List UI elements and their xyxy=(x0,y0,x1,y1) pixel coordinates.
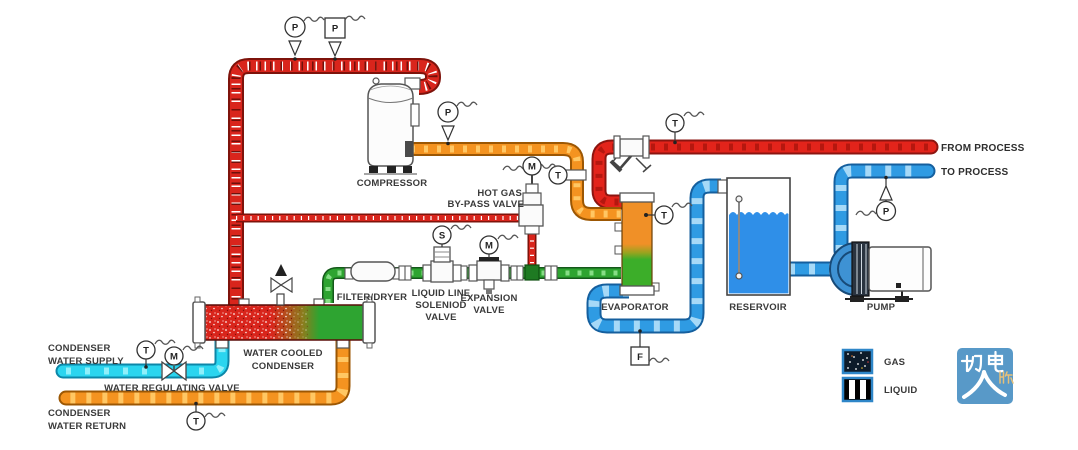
solenoid-label-3: VALVE xyxy=(425,312,456,323)
legend: GAS LIQUID xyxy=(843,350,917,401)
compressor-terminal-box xyxy=(411,104,419,126)
return-label-1: CONDENSER xyxy=(48,408,111,419)
motor-actuator-bypass: M xyxy=(503,157,541,175)
supply-label-1: CONDENSER xyxy=(48,343,111,354)
evaporator xyxy=(615,193,659,295)
sensor-letter: S xyxy=(439,231,445,242)
filter-dryer xyxy=(345,262,401,281)
sensor-letter: T xyxy=(193,417,199,428)
pressure-sensor-suction: P xyxy=(438,102,477,145)
expansion-label-1: EXPANSION xyxy=(460,293,517,304)
solenoid-coil xyxy=(434,247,450,262)
compressor-label: COMPRESSOR xyxy=(357,178,428,189)
chiller-system-diagram: P P P T M xyxy=(0,0,1078,450)
relief-valve xyxy=(271,264,292,305)
reservoir-label: RESERVOIR xyxy=(729,302,787,313)
relief-arrow-icon xyxy=(275,264,287,276)
sensor-letter: T xyxy=(555,171,561,182)
level-gauge xyxy=(736,196,742,202)
to-process-label: TO PROCESS xyxy=(941,167,1009,178)
legend-liquid-label: LIQUID xyxy=(884,385,917,396)
expansion-label-2: VALVE xyxy=(473,305,504,316)
hot-gas-bypass-label-2: BY-PASS VALVE xyxy=(447,199,524,210)
solenoid-sensor: S xyxy=(433,225,471,247)
from-process-label: FROM PROCESS xyxy=(941,143,1025,154)
brand-logo xyxy=(957,348,1013,404)
sensor-letter: P xyxy=(332,24,339,35)
filter-dryer-label: FILTER/DRYER xyxy=(337,292,407,303)
y-strainer xyxy=(611,136,651,172)
condenser-label-2: CONDENSER xyxy=(252,361,315,372)
hot-gas-bypass-label-1: HOT GAS xyxy=(477,188,522,199)
return-label-2: WATER RETURN xyxy=(48,421,126,432)
sensor-letter: M xyxy=(170,352,178,363)
temperature-sensor-return: T xyxy=(187,402,225,430)
condenser-right-cap xyxy=(363,302,375,343)
reservoir xyxy=(718,178,790,295)
condenser-label-1: WATER COOLED xyxy=(243,348,322,359)
regulating-valve-label: WATER REGULATING VALVE xyxy=(104,383,240,394)
sensor-letter: T xyxy=(672,119,678,130)
legend-gas-label: GAS xyxy=(884,357,905,368)
solenoid-valve xyxy=(423,247,461,282)
suction-temp-fitting xyxy=(566,170,586,180)
compressor-suction-fitting xyxy=(405,141,413,157)
sensor-letter: T xyxy=(143,346,149,357)
compressor xyxy=(364,78,420,174)
evaporator-top-cap xyxy=(620,193,654,202)
sensor-letter: P xyxy=(445,108,452,119)
sensor-letter: P xyxy=(883,207,890,218)
sensor-letter: T xyxy=(661,211,667,222)
sensor-letter: M xyxy=(528,162,536,173)
evaporator-bottom-cap xyxy=(620,286,654,295)
evaporator-label: EVAPORATOR xyxy=(601,302,668,313)
sensor-letter: M xyxy=(485,241,493,252)
pump-label: PUMP xyxy=(867,302,896,313)
condenser-left-cap xyxy=(193,302,205,343)
flow-sensor: F xyxy=(631,329,669,365)
legend-liquid-swatch xyxy=(843,378,872,401)
expansion-valve xyxy=(469,259,509,294)
motor-actuator-expansion: M xyxy=(480,235,518,258)
compressor-top-stub xyxy=(373,78,379,84)
solenoid-label-2: SOLENIOD xyxy=(415,300,466,311)
pressure-sensor-discharge-1: P xyxy=(285,17,324,61)
motor-actuator-regulating-valve: M xyxy=(165,346,203,365)
sensor-letter: P xyxy=(292,23,299,34)
diagram-canvas: P P P T M xyxy=(0,0,1078,450)
pressure-sensor-process-out: P xyxy=(856,176,896,221)
pump xyxy=(830,242,931,302)
reservoir-water xyxy=(729,212,789,293)
sensor-letter: F xyxy=(637,352,643,363)
supply-label-2: WATER SUPPLY xyxy=(48,356,124,367)
temperature-sensor-process-in: T xyxy=(666,112,704,144)
pressure-switch-discharge: P xyxy=(325,16,365,61)
